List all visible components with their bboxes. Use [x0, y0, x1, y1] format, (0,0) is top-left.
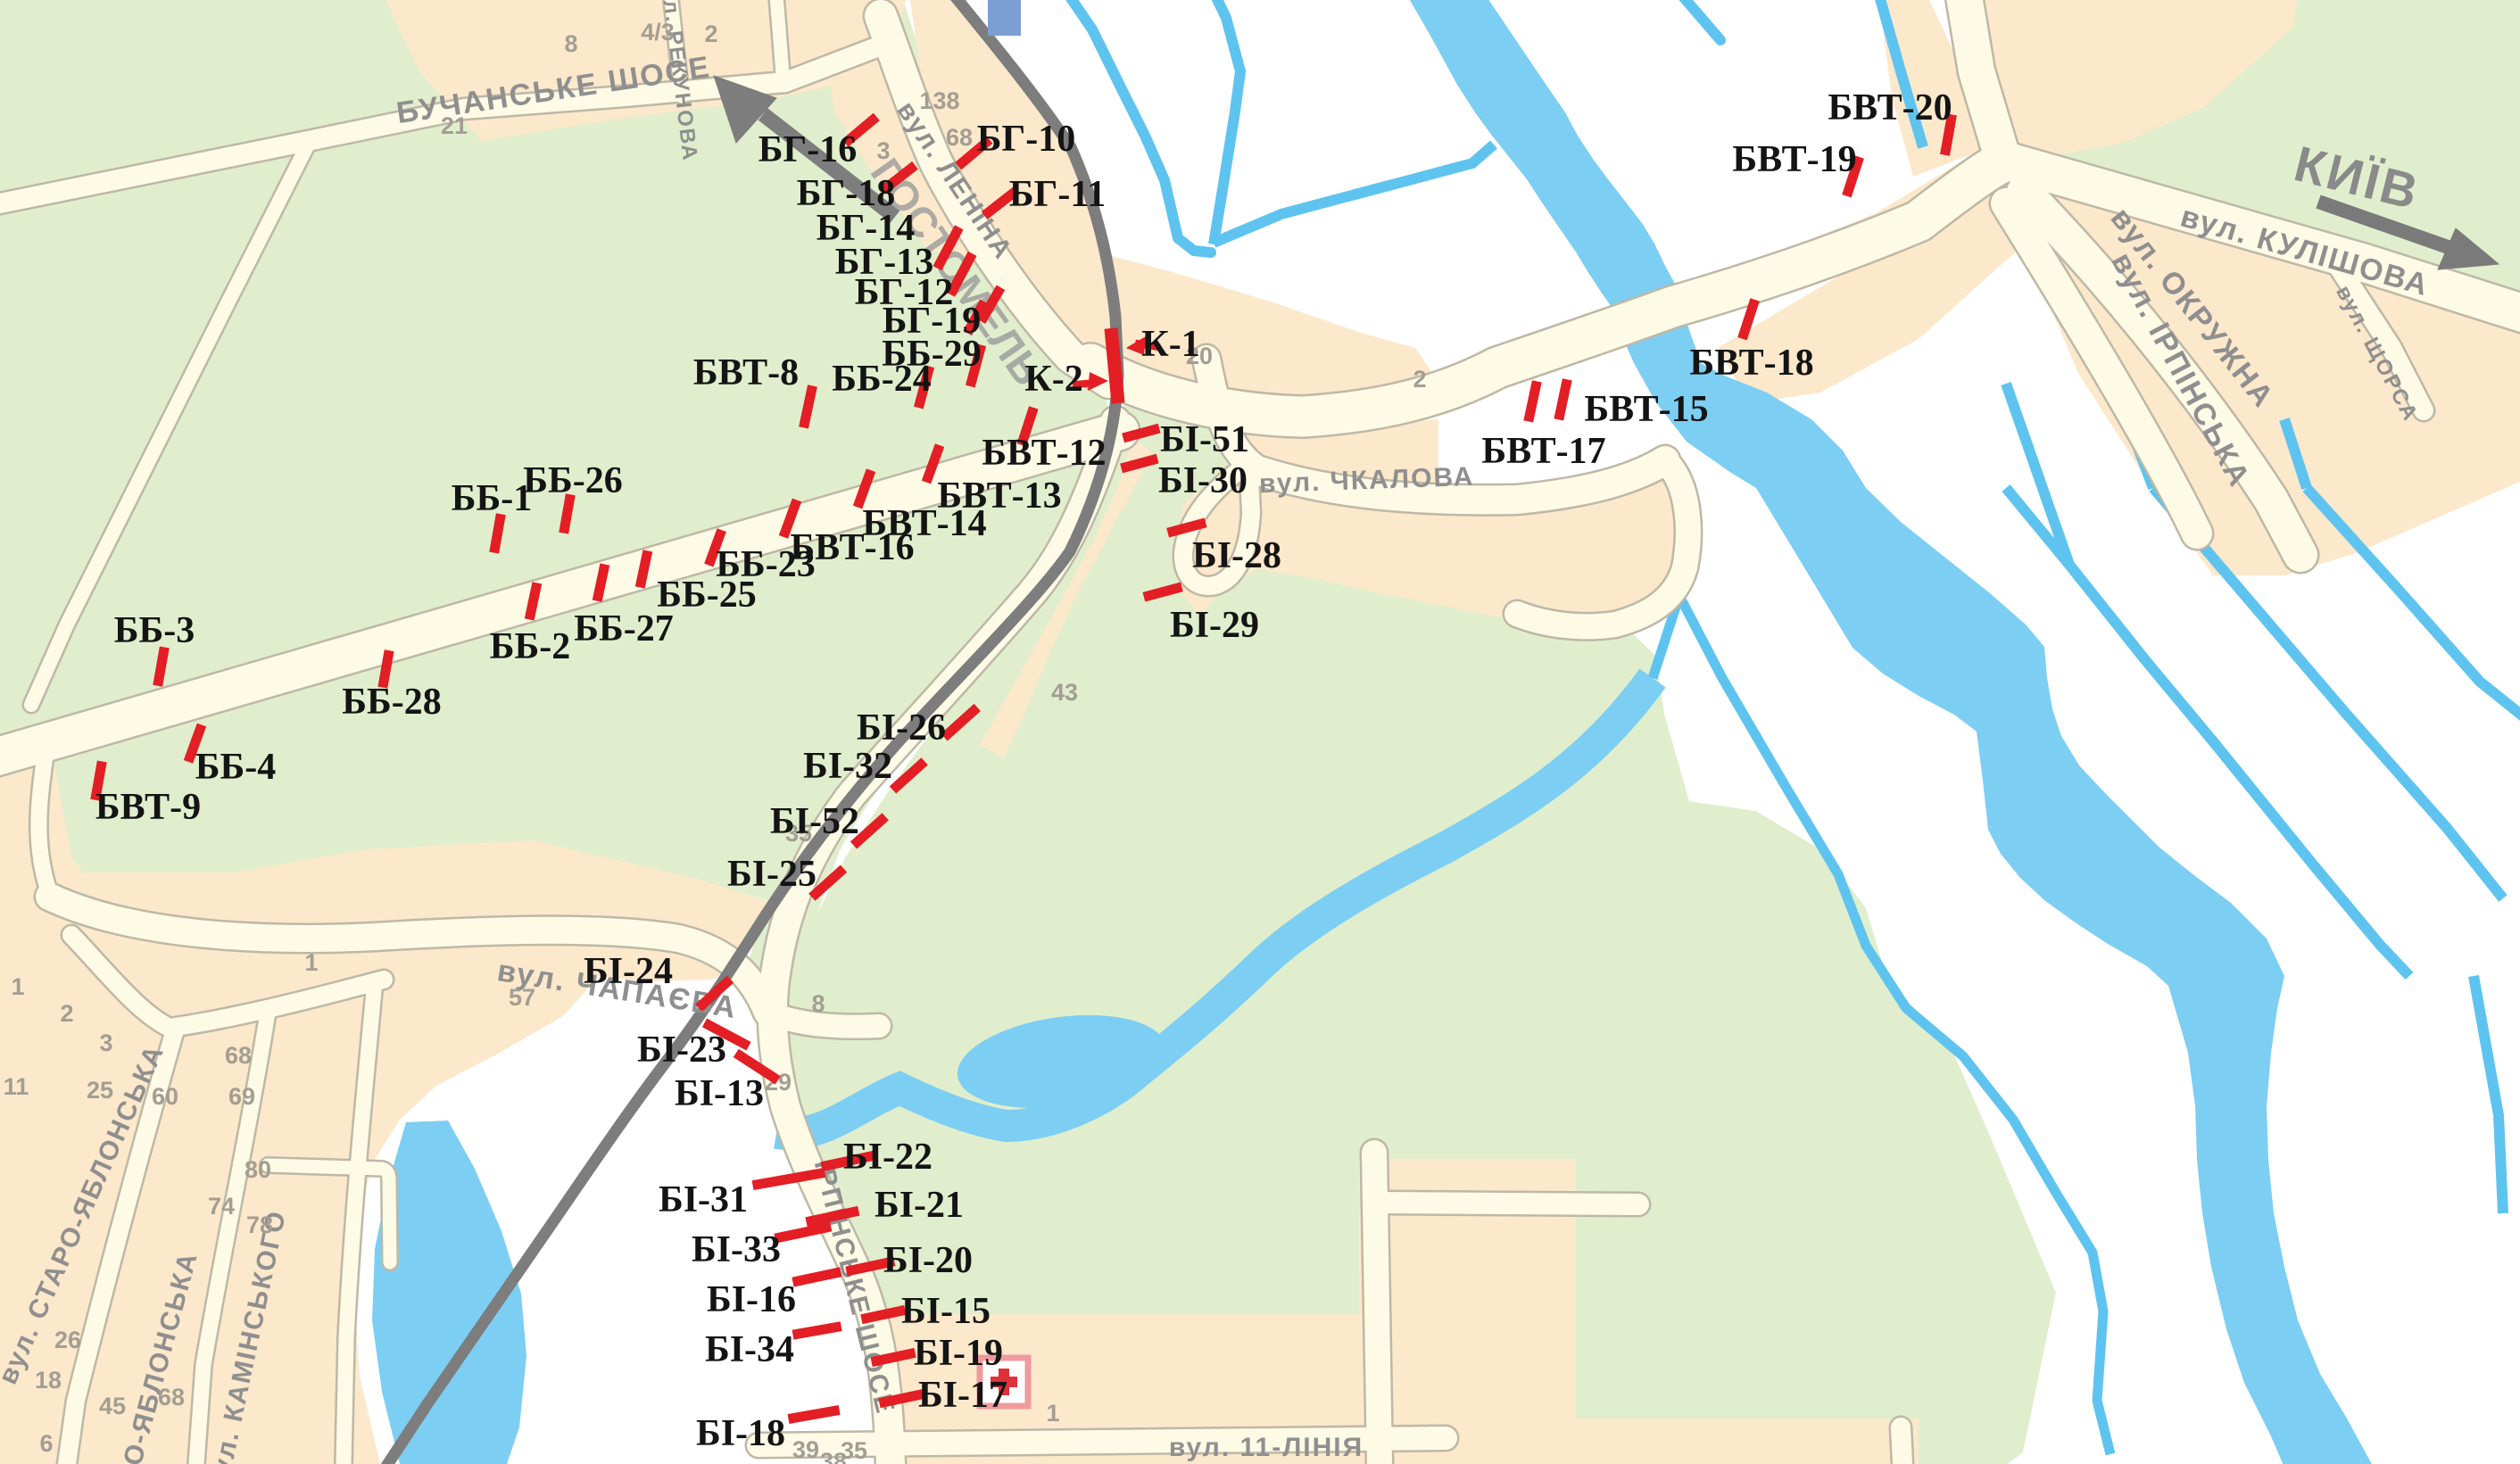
- svg-text:4/3: 4/3: [641, 19, 675, 45]
- svg-text:57: 57: [509, 984, 535, 1011]
- svg-text:БІ-52: БІ-52: [770, 801, 859, 842]
- svg-text:80: 80: [245, 1156, 271, 1183]
- svg-text:БІ-25: БІ-25: [727, 854, 817, 895]
- svg-text:БІ-31: БІ-31: [659, 1179, 748, 1220]
- svg-text:1: 1: [1046, 1400, 1059, 1427]
- svg-text:БІ-34: БІ-34: [705, 1329, 794, 1370]
- svg-text:БІ-13: БІ-13: [675, 1073, 764, 1114]
- svg-text:39: 39: [792, 1436, 819, 1463]
- svg-text:3: 3: [876, 137, 890, 164]
- svg-text:БІ-15: БІ-15: [901, 1291, 991, 1332]
- svg-text:ББ-2: ББ-2: [490, 626, 571, 667]
- svg-text:БВТ-8: БВТ-8: [693, 352, 799, 393]
- svg-text:68: 68: [158, 1384, 185, 1410]
- svg-text:26: 26: [54, 1327, 81, 1353]
- svg-text:БІ-28: БІ-28: [1192, 535, 1281, 576]
- svg-text:18: 18: [35, 1367, 62, 1394]
- svg-text:38: 38: [820, 1448, 847, 1464]
- svg-text:ББ-1: ББ-1: [452, 478, 533, 519]
- svg-text:ББ-28: ББ-28: [342, 682, 442, 723]
- svg-text:БВТ-20: БВТ-20: [1828, 87, 1952, 128]
- svg-text:БГ-11: БГ-11: [1009, 174, 1106, 215]
- svg-text:БГ-10: БГ-10: [977, 119, 1075, 160]
- svg-text:БІ-32: БІ-32: [803, 746, 892, 787]
- svg-text:ББ-27: ББ-27: [574, 608, 674, 649]
- svg-text:БІ-26: БІ-26: [857, 707, 946, 749]
- svg-text:6: 6: [39, 1430, 53, 1457]
- svg-text:74: 74: [208, 1193, 235, 1220]
- svg-text:68: 68: [225, 1042, 252, 1069]
- svg-text:21: 21: [441, 112, 468, 139]
- svg-text:2: 2: [60, 1000, 73, 1027]
- svg-text:БІ-17: БІ-17: [918, 1375, 1007, 1416]
- svg-text:43: 43: [1051, 679, 1078, 706]
- svg-text:вул. 11-ЛІНІЯ: вул. 11-ЛІНІЯ: [1169, 1433, 1364, 1462]
- svg-text:3: 3: [99, 1030, 112, 1056]
- svg-text:ББ-4: ББ-4: [195, 747, 277, 788]
- svg-text:ББ-3: ББ-3: [114, 610, 195, 651]
- svg-text:БІ-51: БІ-51: [1160, 419, 1249, 460]
- svg-text:БГ-16: БГ-16: [758, 129, 857, 170]
- svg-text:ББ-24: ББ-24: [832, 359, 932, 400]
- svg-text:25: 25: [87, 1077, 113, 1104]
- svg-text:1: 1: [304, 949, 318, 976]
- svg-text:1: 1: [11, 973, 24, 1000]
- svg-text:К-2: К-2: [1024, 359, 1082, 400]
- svg-text:БВТ-12: БВТ-12: [982, 433, 1106, 474]
- svg-text:68: 68: [946, 124, 973, 151]
- svg-text:БІ-19: БІ-19: [914, 1333, 1003, 1374]
- svg-text:ББ-26: ББ-26: [523, 460, 623, 501]
- svg-text:11: 11: [4, 1073, 29, 1100]
- svg-text:БІ-23: БІ-23: [637, 1030, 726, 1071]
- svg-text:БВТ-17: БВТ-17: [1481, 431, 1605, 472]
- svg-text:69: 69: [228, 1083, 255, 1110]
- svg-text:БІ-20: БІ-20: [883, 1240, 973, 1281]
- svg-text:138: 138: [919, 87, 959, 114]
- svg-text:БІ-22: БІ-22: [843, 1137, 933, 1178]
- svg-text:45: 45: [99, 1393, 126, 1419]
- svg-text:78: 78: [246, 1212, 273, 1238]
- svg-text:2: 2: [704, 21, 717, 47]
- svg-text:БІ-33: БІ-33: [692, 1229, 781, 1270]
- svg-text:БВТ-18: БВТ-18: [1689, 343, 1813, 384]
- svg-text:8: 8: [811, 990, 825, 1017]
- svg-text:К-1: К-1: [1141, 324, 1199, 365]
- svg-text:БВТ-15: БВТ-15: [1584, 389, 1708, 430]
- svg-text:БІ-16: БІ-16: [707, 1279, 796, 1320]
- svg-text:60: 60: [152, 1083, 178, 1110]
- svg-text:БІ-24: БІ-24: [584, 951, 673, 992]
- svg-text:БІ-21: БІ-21: [875, 1185, 964, 1226]
- svg-text:8: 8: [564, 30, 577, 57]
- svg-text:БІ-30: БІ-30: [1158, 460, 1248, 501]
- svg-text:БІ-18: БІ-18: [696, 1413, 785, 1454]
- svg-text:БВТ-9: БВТ-9: [95, 787, 201, 828]
- svg-text:БВТ-19: БВТ-19: [1732, 139, 1856, 180]
- svg-text:БІ-29: БІ-29: [1170, 605, 1259, 646]
- svg-text:2: 2: [1413, 366, 1426, 393]
